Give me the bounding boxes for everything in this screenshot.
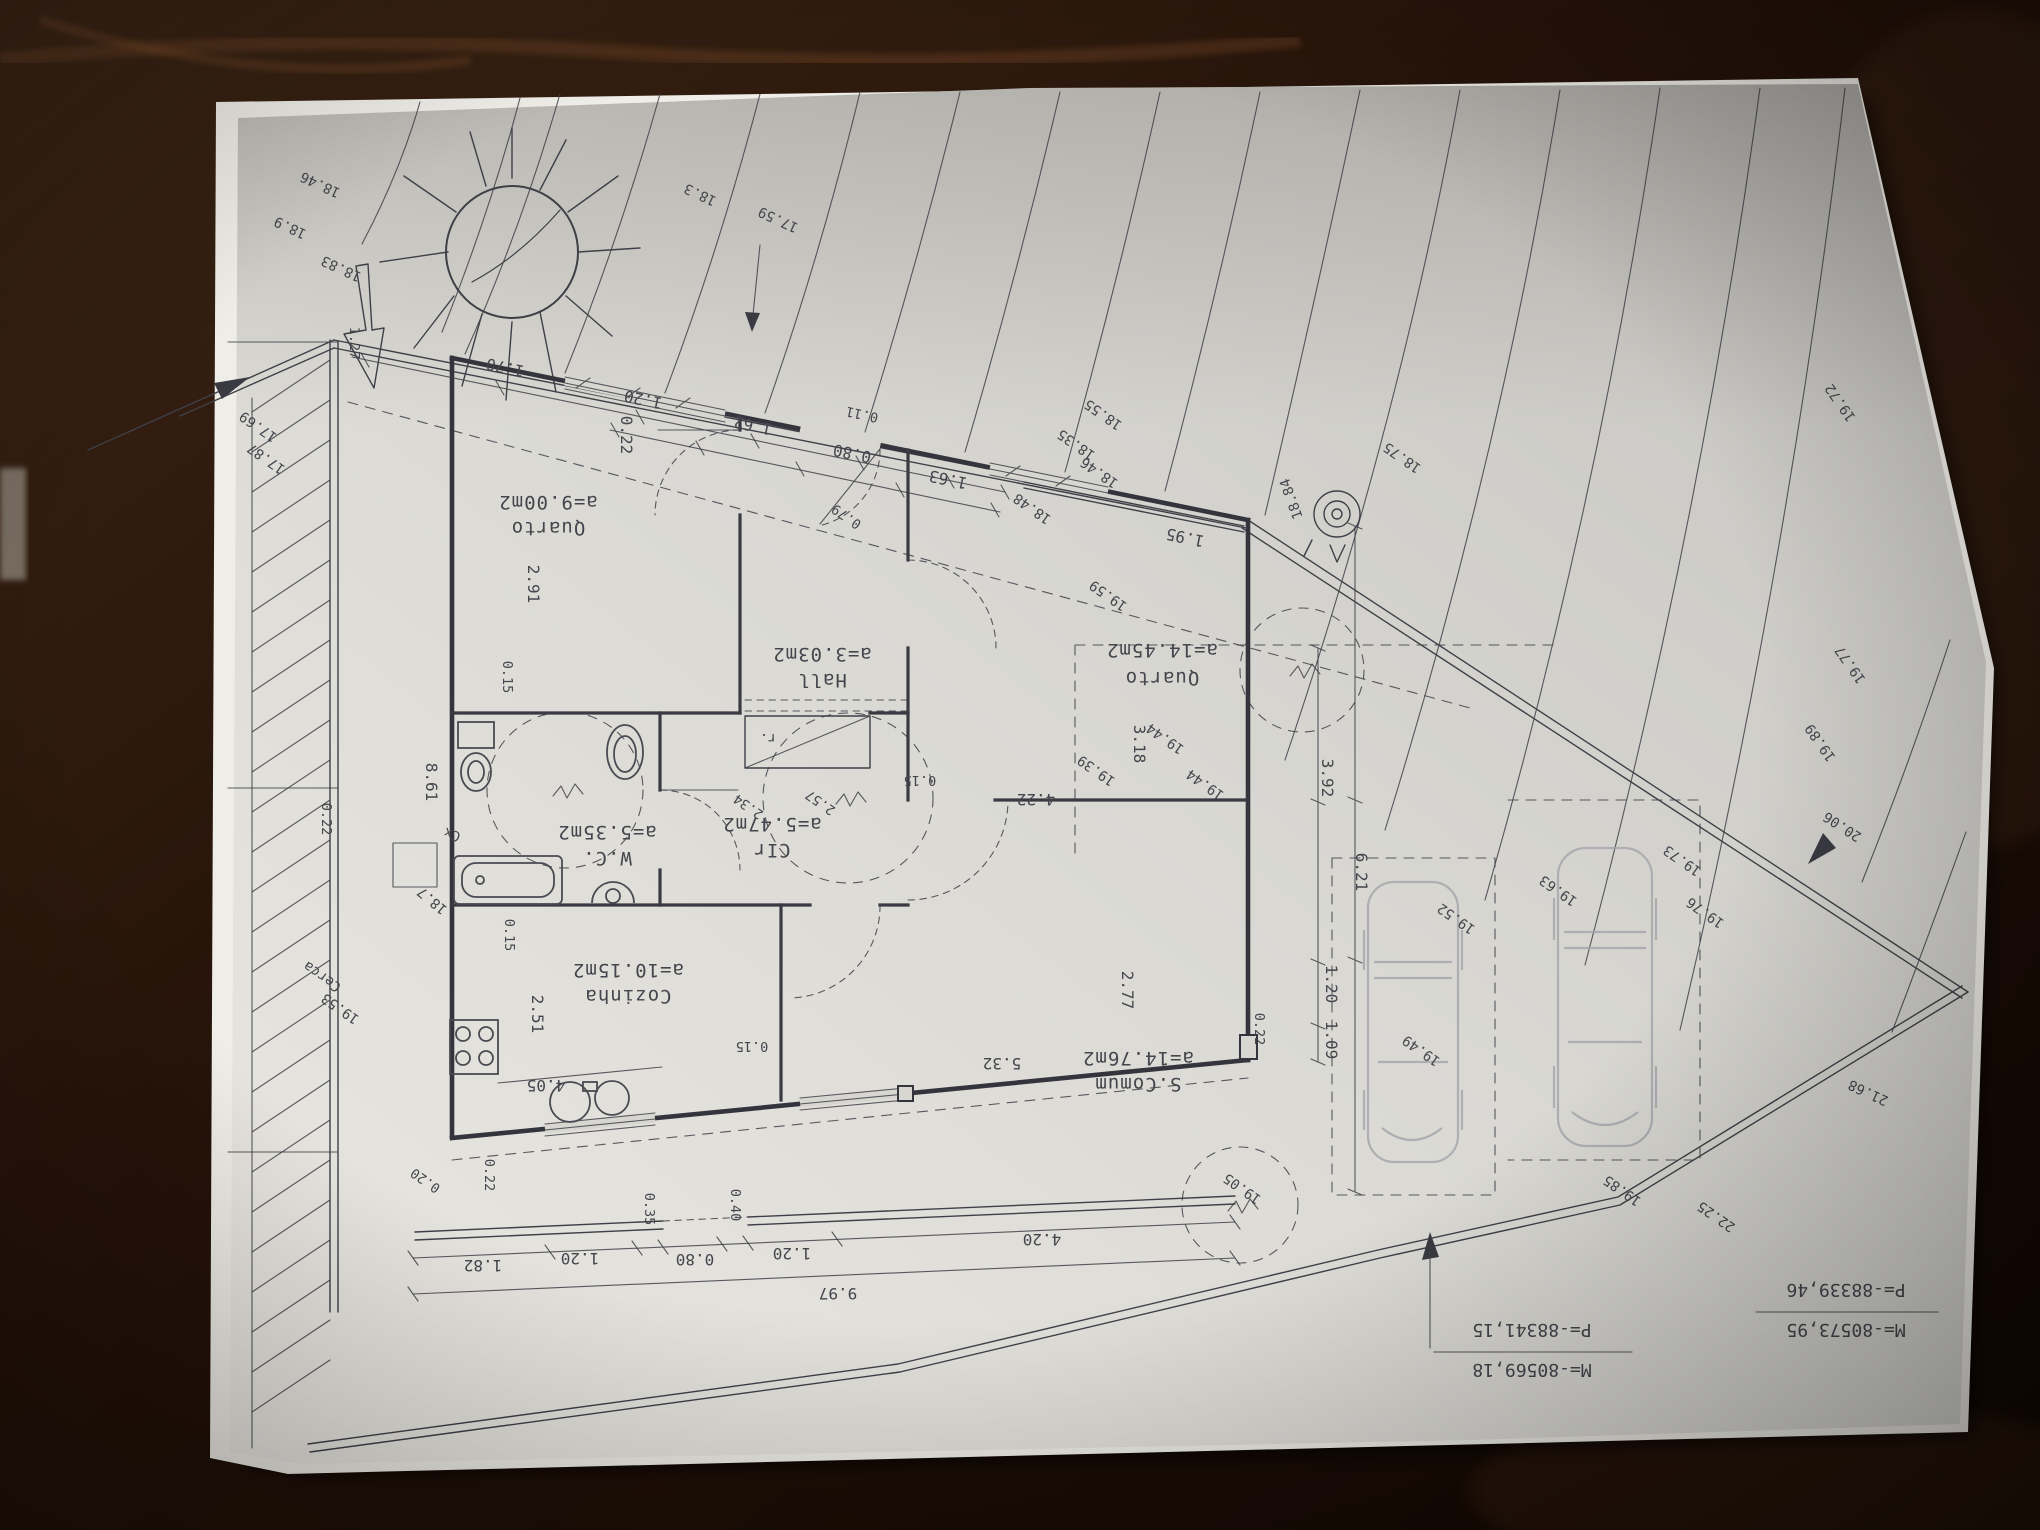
photo-of-site-plan: a=9.00m2 Quarto a=3.03m2 Hall a=14.45m2 … — [0, 0, 2040, 1530]
photo-vignette — [0, 0, 2040, 1530]
site-plan-photo: a=9.00m2 Quarto a=3.03m2 Hall a=14.45m2 … — [0, 0, 2040, 1530]
